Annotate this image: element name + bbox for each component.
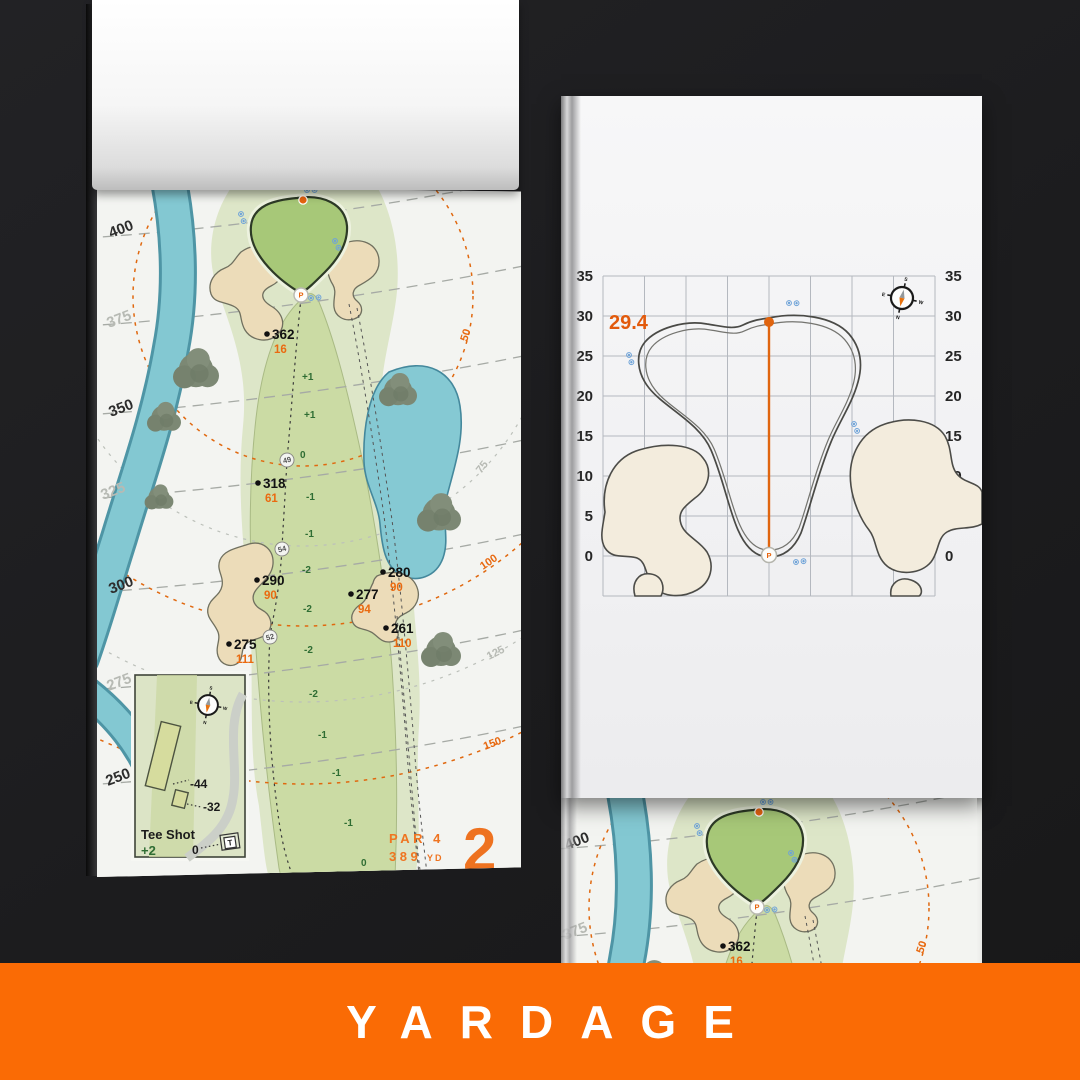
svg-text:0: 0 (945, 548, 953, 565)
flipped-blank-page (92, 0, 519, 190)
svg-text:25: 25 (945, 348, 962, 365)
svg-text:20: 20 (945, 388, 962, 405)
svg-text:30: 30 (945, 308, 962, 325)
green-detail-art: 35 30 25 20 15 10 5 0 35 30 25 20 15 5 1… (561, 96, 982, 798)
hole-map-art: S N W E (97, 186, 521, 877)
svg-text:P: P (766, 551, 771, 560)
yardage-banner: YARDAGE (0, 963, 1080, 1080)
svg-text:35: 35 (945, 268, 962, 285)
green-bunkers (602, 420, 982, 596)
yardage-book-mockup: S N W E (0, 0, 1080, 1080)
page-curl (561, 96, 581, 798)
next-map-art (561, 798, 982, 965)
hole-map-page: S N W E (97, 186, 521, 877)
page-curl (561, 798, 577, 965)
green-detail-page: 35 30 25 20 15 10 5 0 35 30 25 20 15 5 1… (561, 96, 982, 798)
next-map-page (561, 798, 982, 965)
green-page-compass (877, 273, 928, 326)
svg-text:5: 5 (585, 508, 593, 525)
banner-label: YARDAGE (346, 995, 761, 1049)
svg-text:0: 0 (585, 548, 593, 565)
green-depth-value: 29.4 (609, 312, 649, 334)
